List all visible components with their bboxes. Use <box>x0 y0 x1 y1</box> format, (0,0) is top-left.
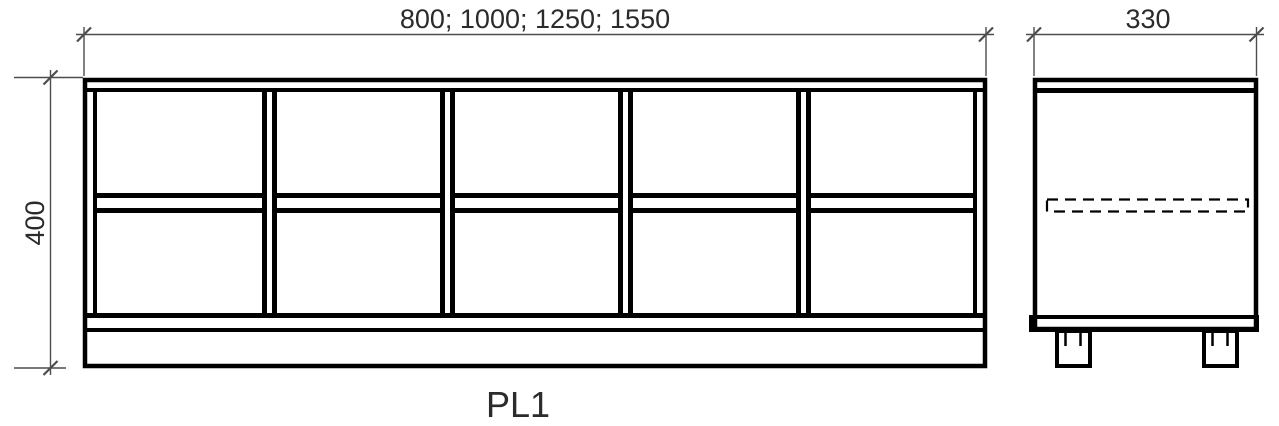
side-view <box>1031 80 1257 366</box>
leg <box>1204 331 1237 366</box>
drawing-sheet: 800; 1000; 1250; 1550 400 330 PL1 <box>0 0 1279 426</box>
front-width-value: 800; 1000; 1250; 1550 <box>400 4 670 34</box>
front-height-value: 400 <box>20 200 50 245</box>
technical-drawing-canvas: 800; 1000; 1250; 1550 400 330 PL1 <box>0 0 1279 426</box>
dimension-front-height: 400 <box>14 70 83 375</box>
dimension-front-width: 800; 1000; 1250; 1550 <box>76 4 994 76</box>
item-label: PL1 <box>486 384 550 425</box>
front-middle-shelves <box>95 196 975 211</box>
front-view <box>85 80 985 366</box>
side-bottom-board <box>1031 317 1257 330</box>
dimension-side-depth: 330 <box>1026 4 1264 76</box>
side-hidden-rail <box>1047 200 1248 212</box>
front-dividers <box>265 92 809 316</box>
side-depth-value: 330 <box>1125 4 1170 34</box>
front-outer-frame <box>85 80 985 366</box>
side-legs <box>1057 331 1237 366</box>
leg <box>1057 331 1090 366</box>
side-outer-frame <box>1035 80 1256 329</box>
